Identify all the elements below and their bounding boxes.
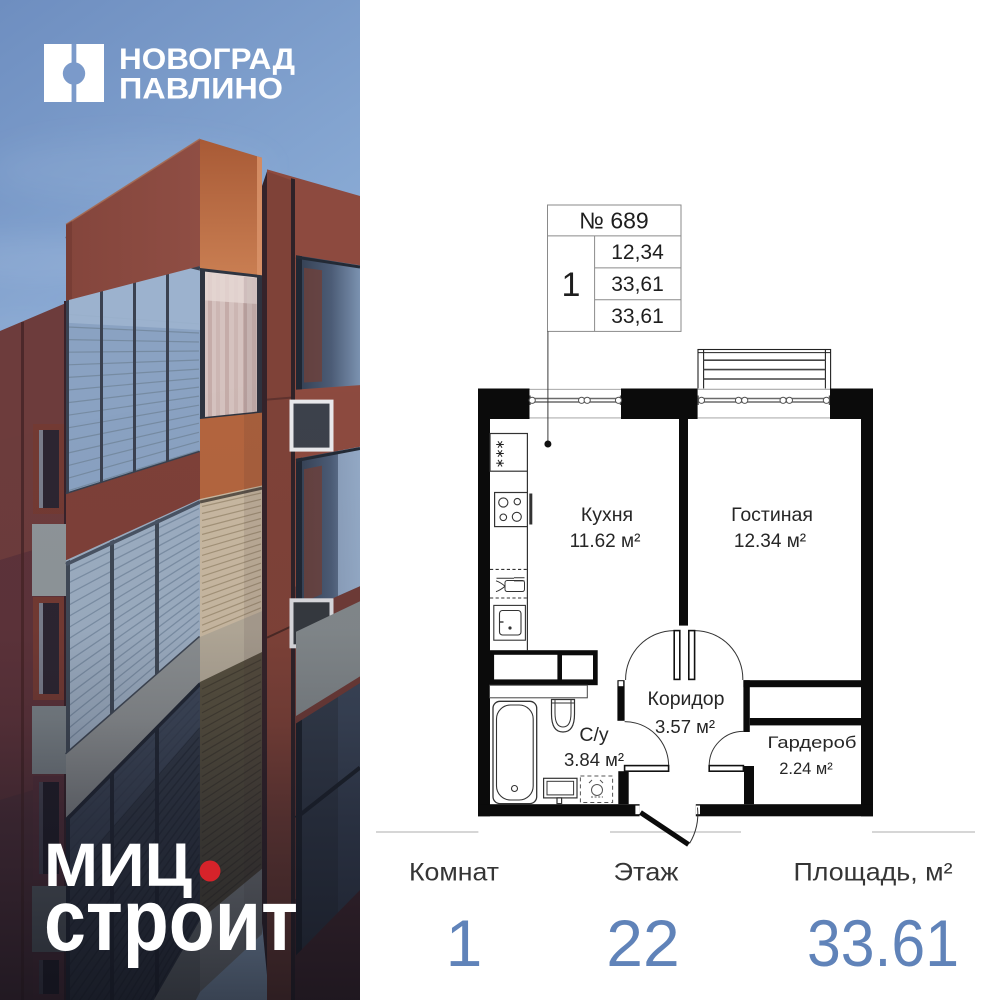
svg-text:22: 22 [606,906,679,980]
svg-text:С/у: С/у [579,724,609,746]
svg-text:Гостиная: Гостиная [731,504,813,526]
svg-text:12,34: 12,34 [611,241,664,264]
svg-text:3.57 м²: 3.57 м² [655,716,715,737]
svg-text:Коридор: Коридор [647,688,724,710]
svg-text:№ 689: № 689 [579,208,648,234]
svg-text:12.34 м²: 12.34 м² [734,531,806,552]
svg-text:1: 1 [446,906,483,980]
svg-text:Комнат: Комнат [409,859,500,887]
svg-text:1: 1 [562,266,581,304]
svg-text:Площадь, м²: Площадь, м² [794,859,953,887]
svg-text:2.24 м²: 2.24 м² [779,760,833,778]
svg-text:33,61: 33,61 [611,273,664,296]
svg-text:33.61: 33.61 [807,906,959,980]
svg-text:11.62 м²: 11.62 м² [570,531,641,552]
svg-text:3.84 м²: 3.84 м² [564,749,624,770]
svg-text:Гардероб: Гардероб [768,733,857,752]
svg-text:33,61: 33,61 [611,305,664,328]
svg-text:Этаж: Этаж [614,859,679,887]
svg-text:Кухня: Кухня [581,504,633,526]
